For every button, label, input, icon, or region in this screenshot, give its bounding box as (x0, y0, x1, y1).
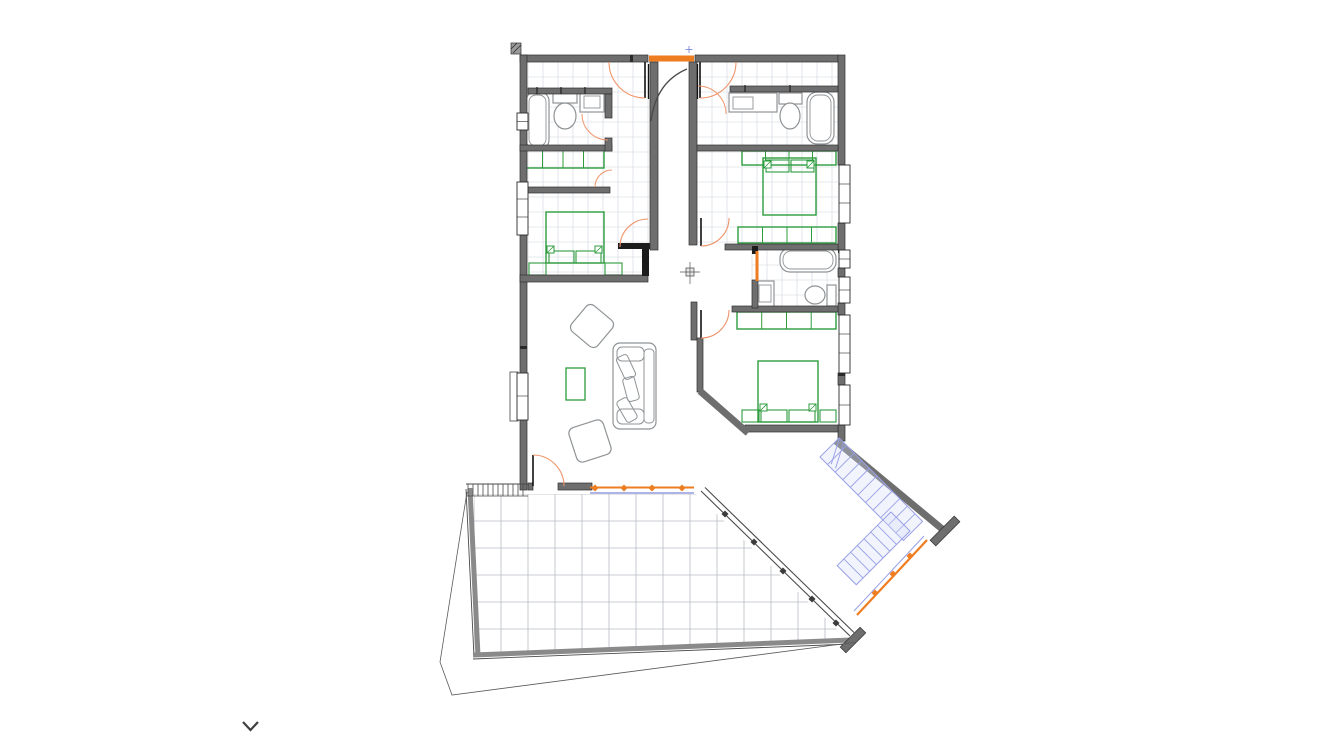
sofa-body (613, 343, 656, 429)
terrace-wall-bottom (473, 640, 851, 655)
door-arc-dressing (595, 170, 612, 187)
sliding-window-studs (620, 484, 627, 491)
wall-dressing-south (520, 187, 610, 193)
wall-corridor-east (689, 62, 697, 245)
wall-bathR-south (697, 145, 838, 151)
sliding-window-studs (591, 484, 598, 491)
wall-top-left-cap (511, 43, 521, 54)
wall-bedLow-south (745, 425, 838, 432)
bed-lower-pillow2 (789, 410, 815, 422)
bed-left (546, 212, 604, 263)
sliding-window-studs (648, 484, 655, 491)
wall-left-2 (520, 128, 527, 182)
door-arc-bedLow (701, 310, 729, 338)
nightstand-left-a (529, 263, 546, 275)
wall-ensuite-south (732, 306, 838, 312)
coffee-table-green (566, 368, 585, 400)
wall-left-1 (520, 55, 527, 115)
bed-lower (758, 361, 818, 422)
window-right-4 (839, 315, 850, 373)
layer-walls (440, 43, 960, 695)
wall-left-3 (520, 235, 527, 375)
wall-bathL-east-a (605, 94, 612, 118)
property-line (440, 492, 857, 695)
wall-living-terrace-b (558, 483, 592, 490)
wall-bathL-north (528, 88, 612, 94)
tile-grid-terrace (474, 494, 850, 656)
sliding-window-studs (678, 484, 685, 491)
stair-flight-upper (820, 438, 923, 541)
toilet-left-bowl (554, 103, 576, 129)
door-arc-terrace (533, 455, 564, 486)
nightstand-lower-a (742, 410, 759, 422)
nightstand-left-b (605, 263, 622, 275)
wall-bathR-north (730, 86, 838, 92)
window-left-2 (517, 182, 528, 235)
wall-joint-left (520, 346, 527, 349)
terrace-rail-diag-2 (705, 488, 854, 633)
toilet-ensuite-bowl (805, 286, 825, 304)
wall-right-1 (838, 55, 845, 165)
wall-joint-right-2 (838, 373, 845, 376)
wall-right-3 (838, 268, 845, 277)
wall-corridor-east-low (691, 302, 697, 340)
wall-bedL-south (520, 275, 648, 282)
stair-flight-lower (837, 512, 910, 585)
wall-nook-v (642, 249, 649, 276)
toilet-ensuite-tank (827, 285, 836, 306)
floor-plan-canvas (0, 0, 1335, 736)
window-right-1 (839, 165, 850, 223)
wall-joint-top (630, 55, 633, 62)
wall-nook-h (618, 243, 650, 249)
door-arc-bathL (582, 114, 608, 140)
wall-right-2 (838, 223, 845, 250)
door-arc-bedL (620, 219, 648, 247)
chevron-mark (243, 722, 258, 730)
armchair-upper (568, 302, 616, 350)
window-left-3 (517, 373, 528, 420)
door-arc-suiteL (609, 62, 645, 98)
nightstand-lower-b (820, 410, 836, 422)
armchair-lower (567, 418, 612, 463)
wall-corridor-west (650, 62, 658, 250)
floor-plan-page (0, 0, 1335, 736)
wall-ensuite-west (752, 280, 758, 308)
wall-top-right (695, 55, 838, 62)
toilet-right-tank (779, 93, 802, 104)
wall-bedLow-diagonal (700, 391, 748, 433)
wall-bedLow-west (697, 338, 703, 392)
wall-right-4 (838, 303, 845, 315)
wall-bathL-south (520, 145, 612, 151)
wall-bedR-south (725, 244, 838, 250)
bed-lower-pillow1 (761, 410, 787, 422)
wall-left-4 (520, 418, 527, 490)
wall-top-left (520, 55, 648, 62)
toilet-right-bowl (780, 103, 800, 129)
